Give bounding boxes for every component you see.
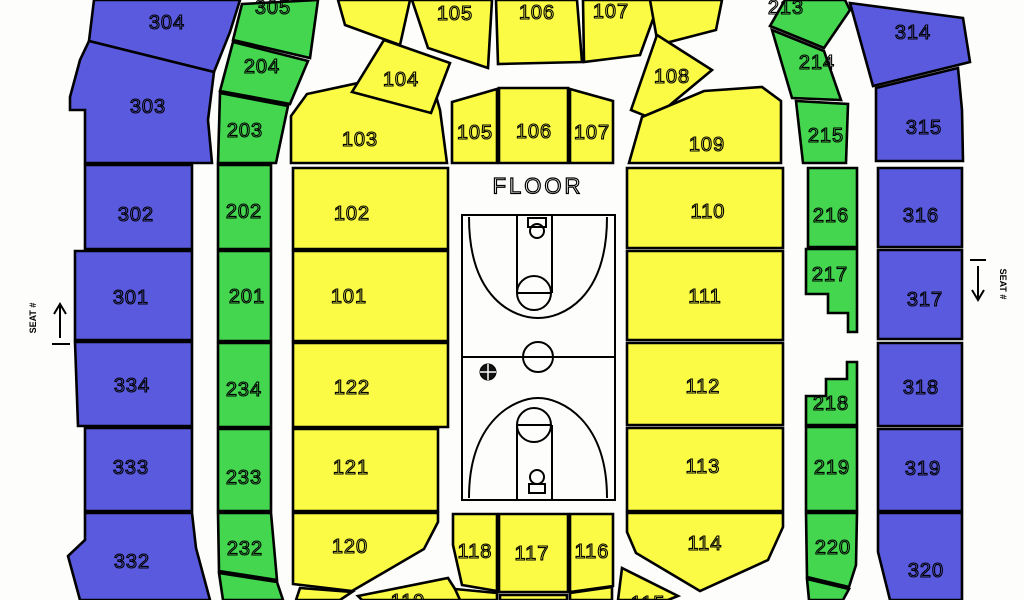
section-label-101: 101 <box>331 286 367 308</box>
section-label-122: 122 <box>334 377 370 399</box>
section-label-204: 204 <box>244 56 280 78</box>
section-label-105: 105 <box>457 122 493 144</box>
section-label-305: 305 <box>255 0 291 19</box>
section-label-333: 333 <box>113 457 149 479</box>
down-arrow-icon <box>972 266 984 300</box>
section-partial[interactable] <box>338 0 410 45</box>
section-label-112: 112 <box>686 376 721 398</box>
section-label-102: 102 <box>334 203 370 225</box>
section-label-107: 107 <box>593 1 629 23</box>
section-label-203: 203 <box>227 120 263 142</box>
seat-direction-left-label: SEAT # <box>28 303 38 334</box>
section-102[interactable] <box>293 168 448 249</box>
section-label-110: 110 <box>691 201 726 223</box>
section-label-202: 202 <box>226 201 262 223</box>
section-label-317: 317 <box>907 289 943 311</box>
section-320[interactable] <box>878 513 962 600</box>
section-217[interactable] <box>806 249 857 332</box>
section-label-316: 316 <box>903 205 939 227</box>
section-label-201: 201 <box>229 286 265 308</box>
section-label-120: 120 <box>332 536 368 558</box>
arena-svg: FLOOR 30430330230133433 <box>0 0 1024 600</box>
section-label-118: 118 <box>458 541 493 563</box>
section-label-115: 115 <box>631 593 666 600</box>
section-label-106: 106 <box>516 121 552 143</box>
top-hoop-icon <box>528 218 546 238</box>
section-122[interactable] <box>293 343 448 427</box>
section-label-213: 213 <box>768 0 804 19</box>
section-label-103: 103 <box>342 129 378 151</box>
section-label-113: 113 <box>686 456 721 478</box>
section-label-233: 233 <box>226 467 262 489</box>
seat-direction-right: SEAT # <box>970 260 1008 300</box>
section-label-234: 234 <box>226 379 262 401</box>
section-label-219: 219 <box>814 457 850 479</box>
basketball-court: FLOOR <box>462 174 615 501</box>
section-label-214: 214 <box>799 52 835 74</box>
section-label-121: 121 <box>333 457 369 479</box>
section-label-108: 108 <box>654 66 690 88</box>
section-label-216: 216 <box>813 205 849 227</box>
section-label-119: 119 <box>391 591 426 600</box>
section-label-314: 314 <box>895 22 931 44</box>
section-label-109: 109 <box>689 134 725 156</box>
section-label-302: 302 <box>118 204 154 226</box>
section-label-104: 104 <box>383 69 419 91</box>
section-label-334: 334 <box>114 375 150 397</box>
section-label-116: 116 <box>575 541 610 563</box>
section-label-232: 232 <box>227 538 263 560</box>
top-three-point-arc <box>469 217 607 318</box>
basketball-icon <box>480 364 496 380</box>
bottom-hoop-icon <box>529 470 545 493</box>
section-label-315: 315 <box>906 117 942 139</box>
section-label-319: 319 <box>905 458 941 480</box>
section-label-107: 107 <box>574 122 610 144</box>
section-label-301: 301 <box>113 287 149 309</box>
arena-seating-map: FLOOR 30430330230133433 <box>0 0 1024 600</box>
section-label-318: 318 <box>903 377 939 399</box>
section-label-117: 117 <box>515 543 550 565</box>
section-label-220: 220 <box>815 537 851 559</box>
section-label-332: 332 <box>114 551 150 573</box>
section-label-215: 215 <box>808 125 844 147</box>
section-label-303: 303 <box>130 96 166 118</box>
section-label-320: 320 <box>908 560 944 582</box>
up-arrow-icon <box>54 304 66 338</box>
floor-label: FLOOR <box>493 174 584 199</box>
section-101[interactable] <box>293 251 448 341</box>
section-label-304: 304 <box>149 12 185 34</box>
section-label-114: 114 <box>688 533 723 555</box>
section-label-218: 218 <box>813 393 849 415</box>
seat-direction-right-label: SEAT # <box>998 269 1008 300</box>
section-label-111: 111 <box>688 286 721 308</box>
section-label-217: 217 <box>812 264 848 286</box>
section-partial[interactable] <box>500 595 567 600</box>
section-label-105: 105 <box>437 3 473 25</box>
section-label-106: 106 <box>519 2 555 24</box>
seat-direction-left: SEAT # <box>28 303 70 344</box>
